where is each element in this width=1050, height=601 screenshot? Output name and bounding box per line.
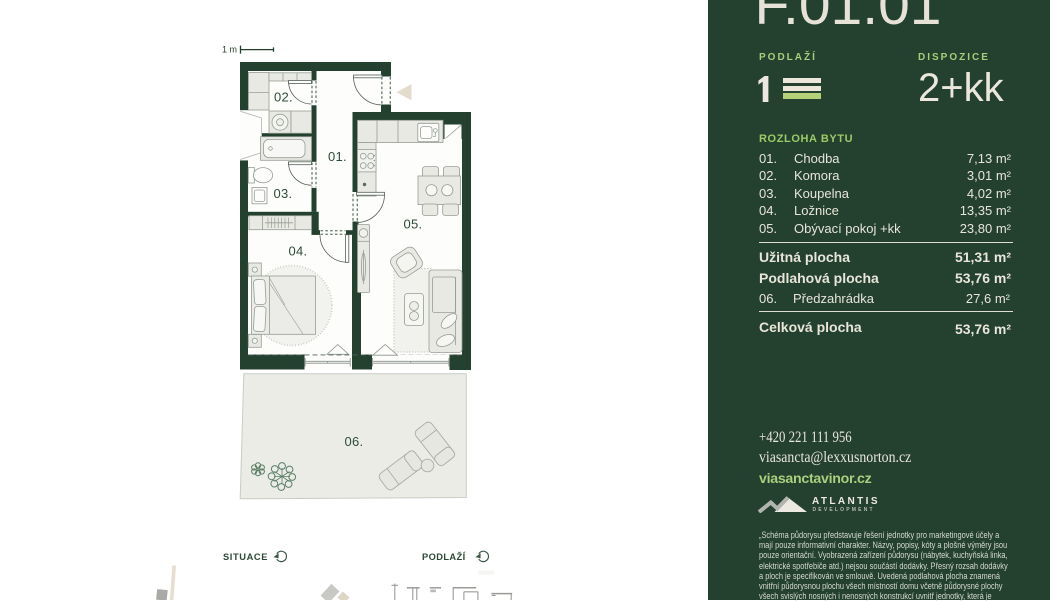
svg-text:01.: 01. xyxy=(328,149,347,164)
svg-text:1 m: 1 m xyxy=(222,45,237,55)
svg-text:SITUACE: SITUACE xyxy=(223,552,268,562)
svg-text:04.: 04. xyxy=(289,243,308,258)
svg-text:06.: 06. xyxy=(345,434,364,449)
svg-text:02.: 02. xyxy=(274,90,293,105)
svg-text:05.: 05. xyxy=(404,217,423,232)
svg-text:03.: 03. xyxy=(274,186,293,201)
svg-text:PODLAŽÍ: PODLAŽÍ xyxy=(422,551,466,562)
